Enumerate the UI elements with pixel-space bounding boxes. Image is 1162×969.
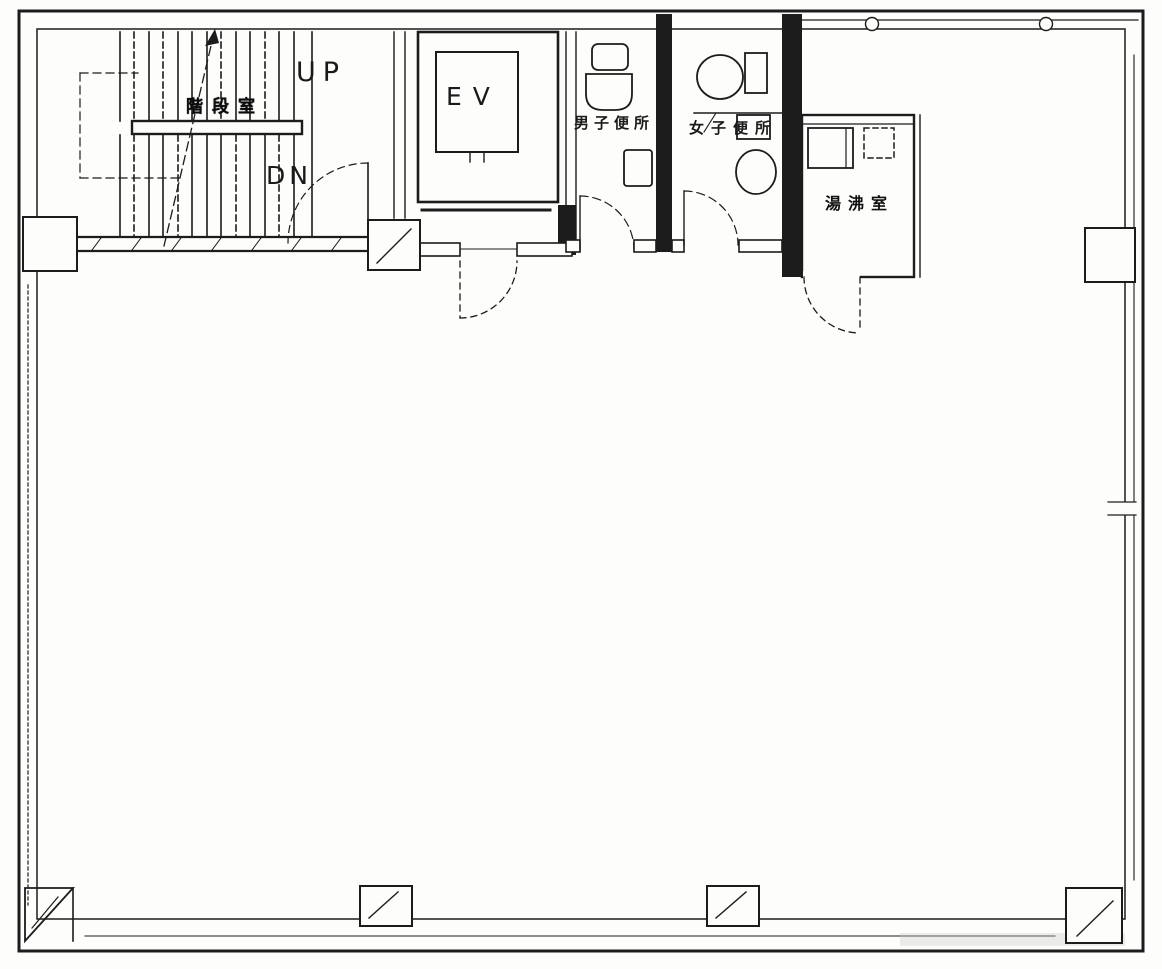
wash-basin [624,150,652,186]
door-opening [803,271,860,283]
elevator-lobby [396,243,572,318]
stair-room-label: 階段室 [186,99,264,116]
up-label: UP [296,59,346,86]
floor-plan-canvas: UP DN 階段室 EV 男子便所 女子便所 湯沸室 [0,0,1162,969]
toilet [697,55,743,99]
toilet [586,74,632,110]
elevator-shaft [418,32,558,210]
pillar [707,886,759,926]
door-swing [684,191,738,245]
womens-toilet-label: 女子便所 [689,121,777,136]
elevator-label: EV [446,84,501,109]
lobby-door-swing [460,261,517,318]
pillar [23,217,77,271]
outer-walls [19,11,1143,951]
corner-brace [32,897,58,928]
pillar [1066,888,1122,943]
corner-brace [25,888,73,941]
mens-toilet-label: 男子便所 [574,116,654,131]
pillar [1085,228,1135,282]
door-swing [804,277,860,333]
room-wall [634,240,656,252]
door-swing [580,196,634,250]
room-wall [739,240,782,252]
stairwell [75,29,405,251]
floor-plan-drawing [0,0,1162,969]
hot-water-room-label: 湯沸室 [825,196,894,212]
window-mullion [1108,502,1136,515]
down-label: DN [266,163,312,188]
room-wall [672,240,684,252]
hot-water-room [802,115,920,333]
toilet [736,150,776,194]
womens-toilet-room [672,53,782,252]
elevator-shaft-wall [418,32,558,202]
urinal [592,44,628,70]
lobby-wall [517,243,572,256]
outer-wall-line [19,11,1143,951]
water-heater [864,128,894,158]
wall-between-toilets [656,14,672,252]
stair-landing [132,121,302,134]
wall-hatch [92,238,341,250]
room-wall [566,240,580,252]
window-mullion [866,18,879,31]
mens-toilet-room [566,32,656,252]
pillar [360,886,412,926]
inner-wall-line [37,29,1125,919]
pillar [368,220,420,270]
window-mullion [1040,18,1053,31]
structural-pillars [23,217,1135,943]
toilet-tank [745,53,767,93]
wall-right-of-womens-toilet [782,14,802,277]
